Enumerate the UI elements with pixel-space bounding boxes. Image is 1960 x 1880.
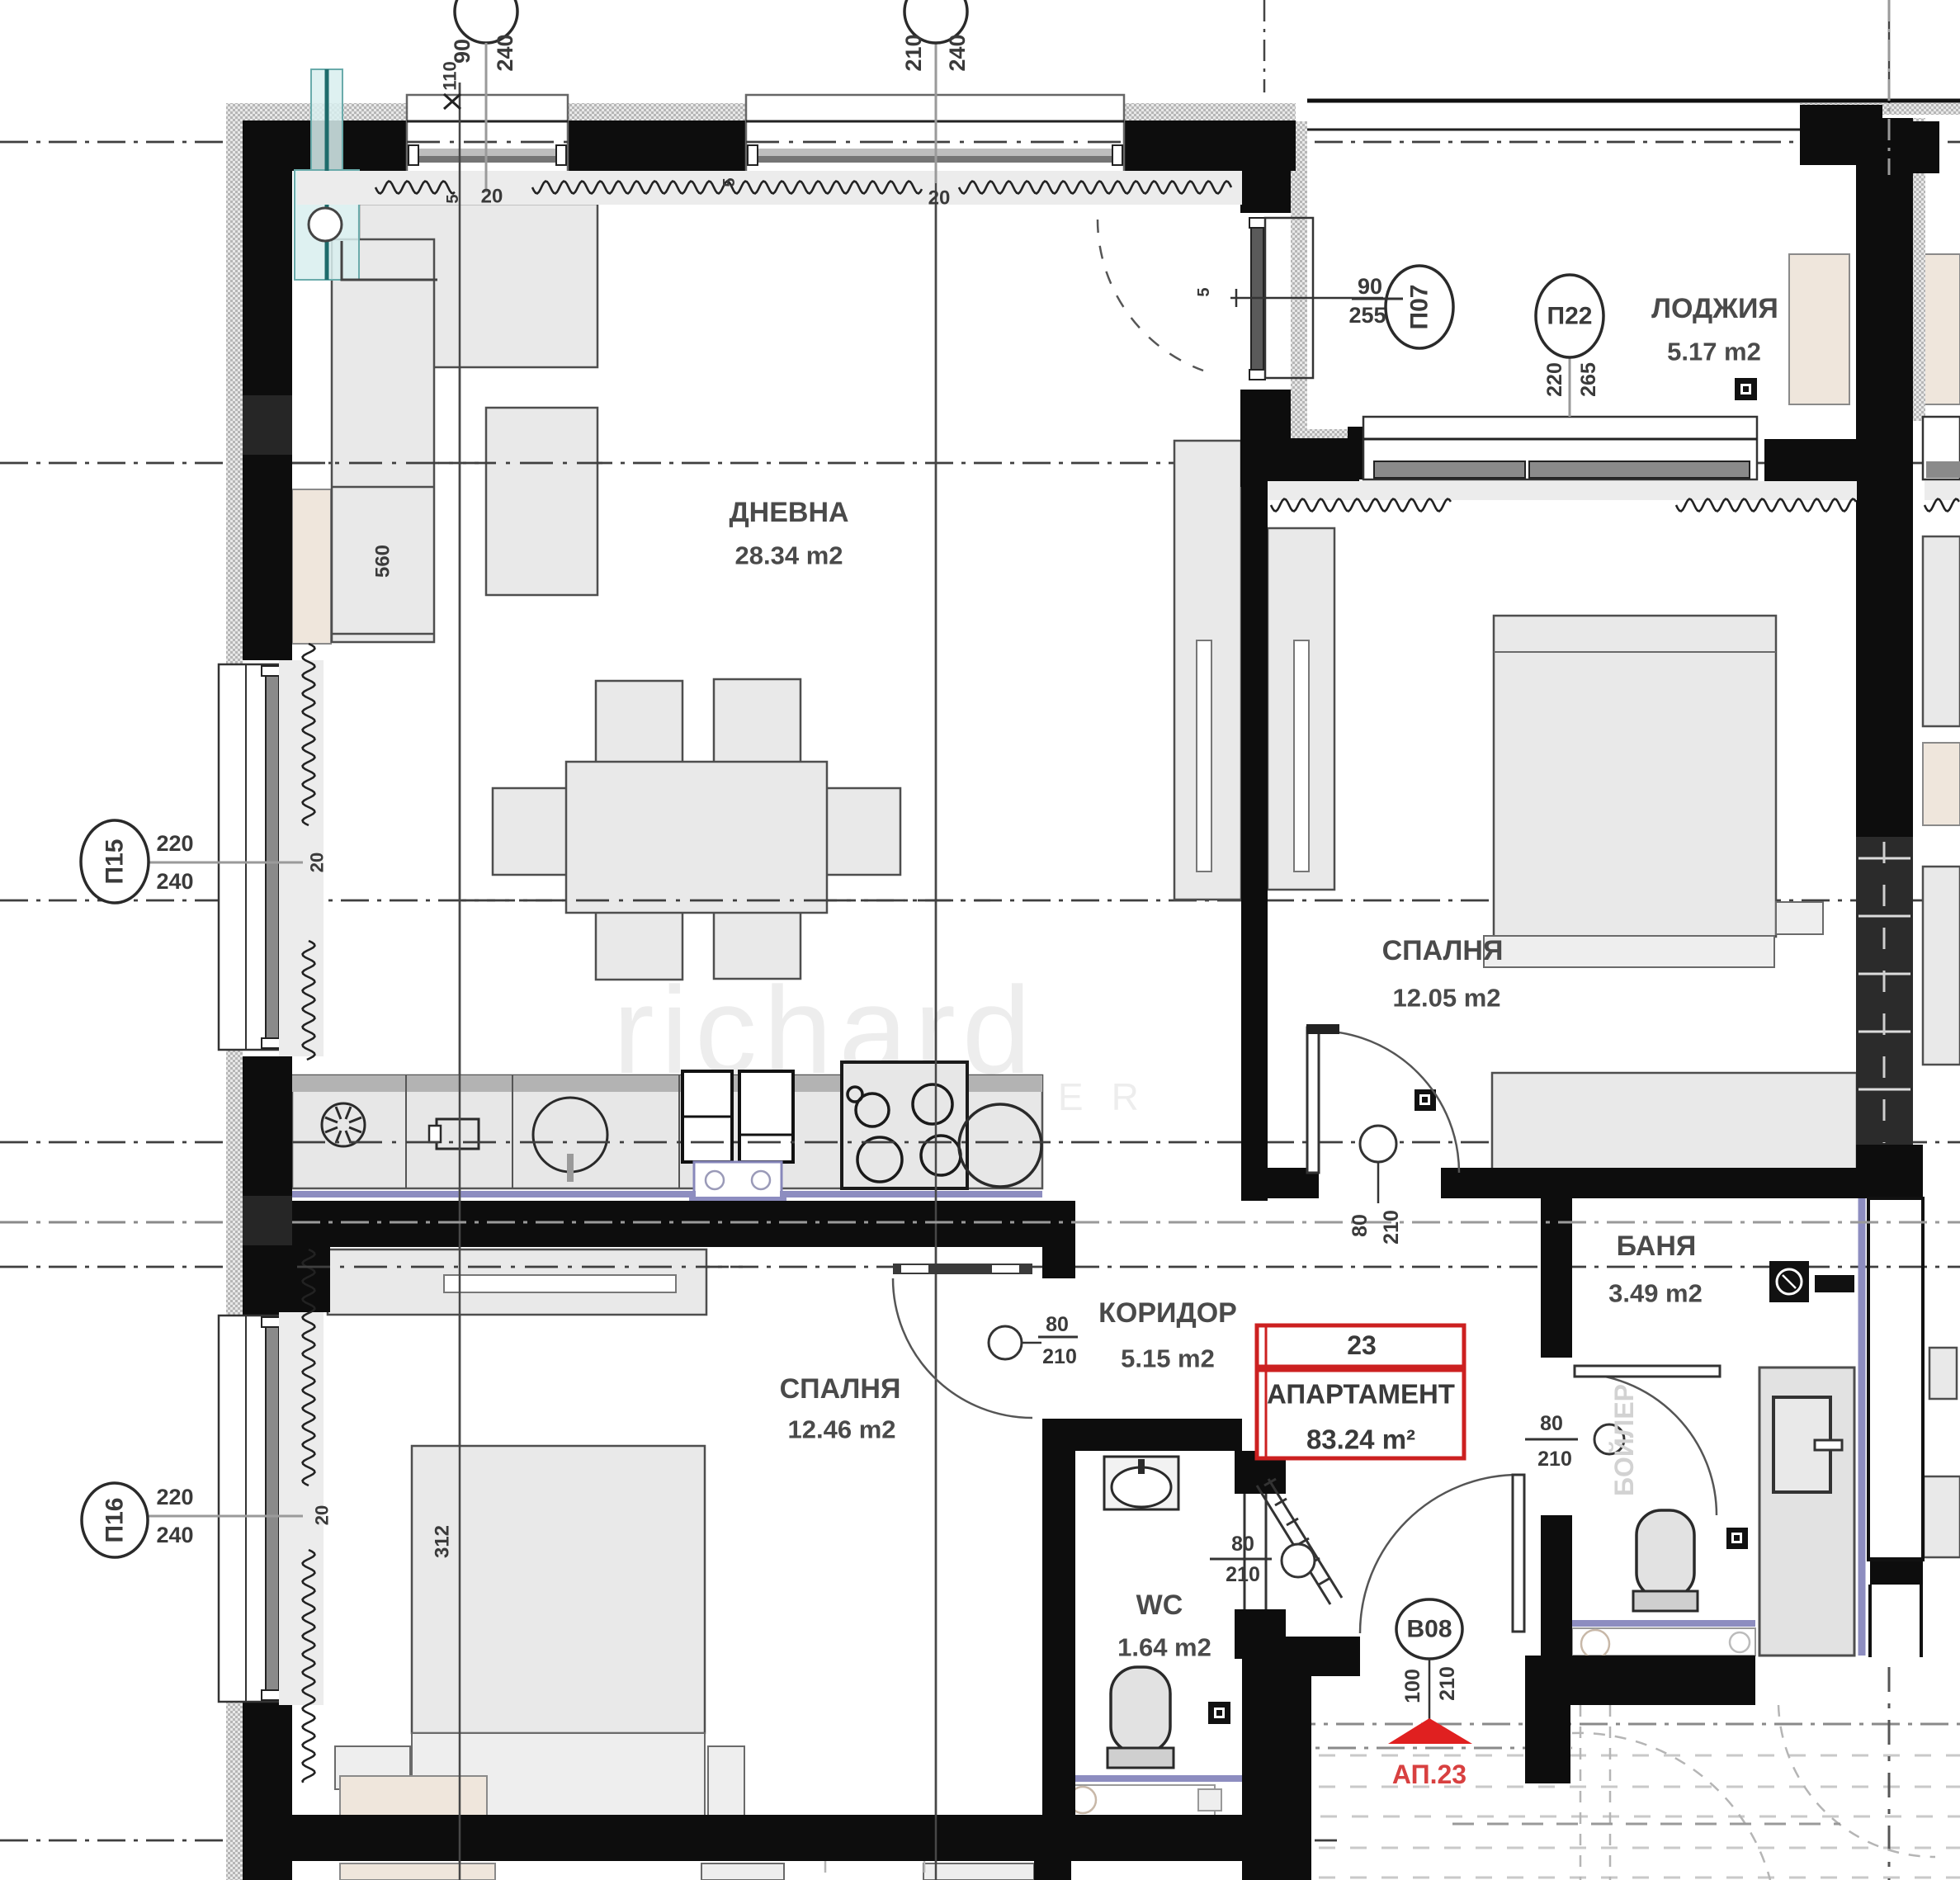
- svg-text:АП.23: АП.23: [1392, 1760, 1466, 1789]
- svg-text:СПАЛНЯ: СПАЛНЯ: [780, 1373, 901, 1405]
- svg-text:210: 210: [1380, 1210, 1403, 1245]
- svg-text:12.05 m2: 12.05 m2: [1393, 984, 1501, 1013]
- svg-text:5.15 m2: 5.15 m2: [1121, 1344, 1215, 1373]
- svg-text:240: 240: [945, 34, 970, 71]
- svg-text:210: 210: [901, 34, 926, 71]
- svg-text:210: 210: [1537, 1448, 1572, 1471]
- svg-text:110: 110: [440, 61, 460, 91]
- svg-text:265: 265: [1577, 362, 1600, 397]
- svg-text:100: 100: [1401, 1669, 1424, 1703]
- svg-text:210: 210: [1042, 1345, 1077, 1368]
- svg-text:220: 220: [156, 1485, 193, 1509]
- svg-text:КОРИДОР: КОРИДОР: [1098, 1297, 1237, 1329]
- svg-text:БАНЯ: БАНЯ: [1617, 1231, 1697, 1262]
- svg-text:ДНЕВНА: ДНЕВНА: [729, 497, 848, 528]
- svg-text:БОЙЛЕР: БОЙЛЕР: [1609, 1384, 1639, 1496]
- svg-text:П16: П16: [102, 1498, 129, 1543]
- svg-text:83.24 m²: 83.24 m²: [1306, 1424, 1415, 1455]
- svg-text:28.34 m2: 28.34 m2: [735, 541, 843, 570]
- svg-text:312: 312: [432, 1525, 454, 1558]
- svg-text:12.46 m2: 12.46 m2: [788, 1415, 896, 1444]
- svg-text:560: 560: [372, 545, 394, 578]
- svg-text:90: 90: [450, 39, 475, 64]
- svg-text:80: 80: [1540, 1412, 1563, 1435]
- svg-text:1.64 m2: 1.64 m2: [1117, 1633, 1211, 1662]
- svg-text:240: 240: [156, 1523, 193, 1547]
- svg-text:210: 210: [1226, 1563, 1260, 1586]
- svg-text:23: 23: [1347, 1330, 1377, 1360]
- svg-text:20: 20: [481, 186, 503, 208]
- svg-text:255: 255: [1348, 303, 1386, 328]
- svg-text:80: 80: [1231, 1533, 1254, 1556]
- svg-text:B08: B08: [1406, 1616, 1452, 1643]
- svg-text:5: 5: [444, 194, 462, 203]
- svg-text:20: 20: [312, 1505, 333, 1525]
- svg-text:240: 240: [156, 869, 193, 894]
- svg-text:220: 220: [156, 831, 193, 856]
- svg-text:80: 80: [1348, 1214, 1372, 1237]
- svg-text:220: 220: [1543, 362, 1566, 397]
- svg-text:ЛОДЖИЯ: ЛОДЖИЯ: [1651, 293, 1778, 324]
- svg-text:П15: П15: [102, 839, 129, 885]
- svg-text:20: 20: [307, 853, 328, 872]
- svg-text:210: 210: [1436, 1666, 1459, 1701]
- svg-text:5.17 m2: 5.17 m2: [1667, 338, 1761, 366]
- svg-text:П22: П22: [1547, 303, 1593, 330]
- svg-text:WC: WC: [1136, 1589, 1183, 1621]
- svg-text:АПАРТАМЕНТ: АПАРТАМЕНТ: [1267, 1379, 1455, 1410]
- svg-text:80: 80: [1046, 1313, 1069, 1336]
- svg-text:5: 5: [1195, 287, 1213, 296]
- svg-text:3.49 m2: 3.49 m2: [1608, 1279, 1703, 1308]
- svg-text:5: 5: [720, 177, 739, 187]
- svg-text:П07: П07: [1406, 285, 1433, 330]
- svg-text:20: 20: [928, 187, 951, 210]
- svg-text:90: 90: [1358, 274, 1382, 299]
- svg-text:240: 240: [493, 34, 517, 71]
- svg-text:СПАЛНЯ: СПАЛНЯ: [1382, 935, 1504, 966]
